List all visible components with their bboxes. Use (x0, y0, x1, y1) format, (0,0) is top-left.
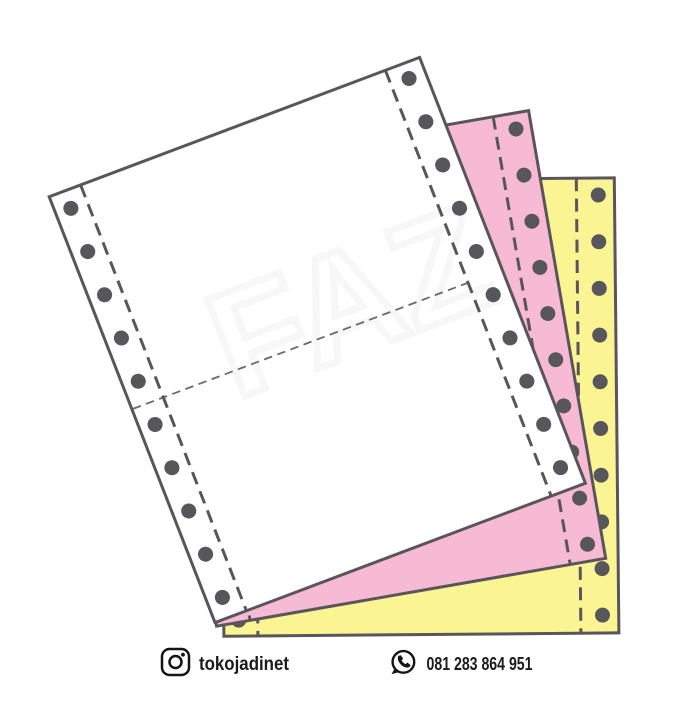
svg-text:tokojadinet: tokojadinet (199, 654, 290, 675)
svg-text:081 283 864 951: 081 283 864 951 (427, 653, 533, 674)
